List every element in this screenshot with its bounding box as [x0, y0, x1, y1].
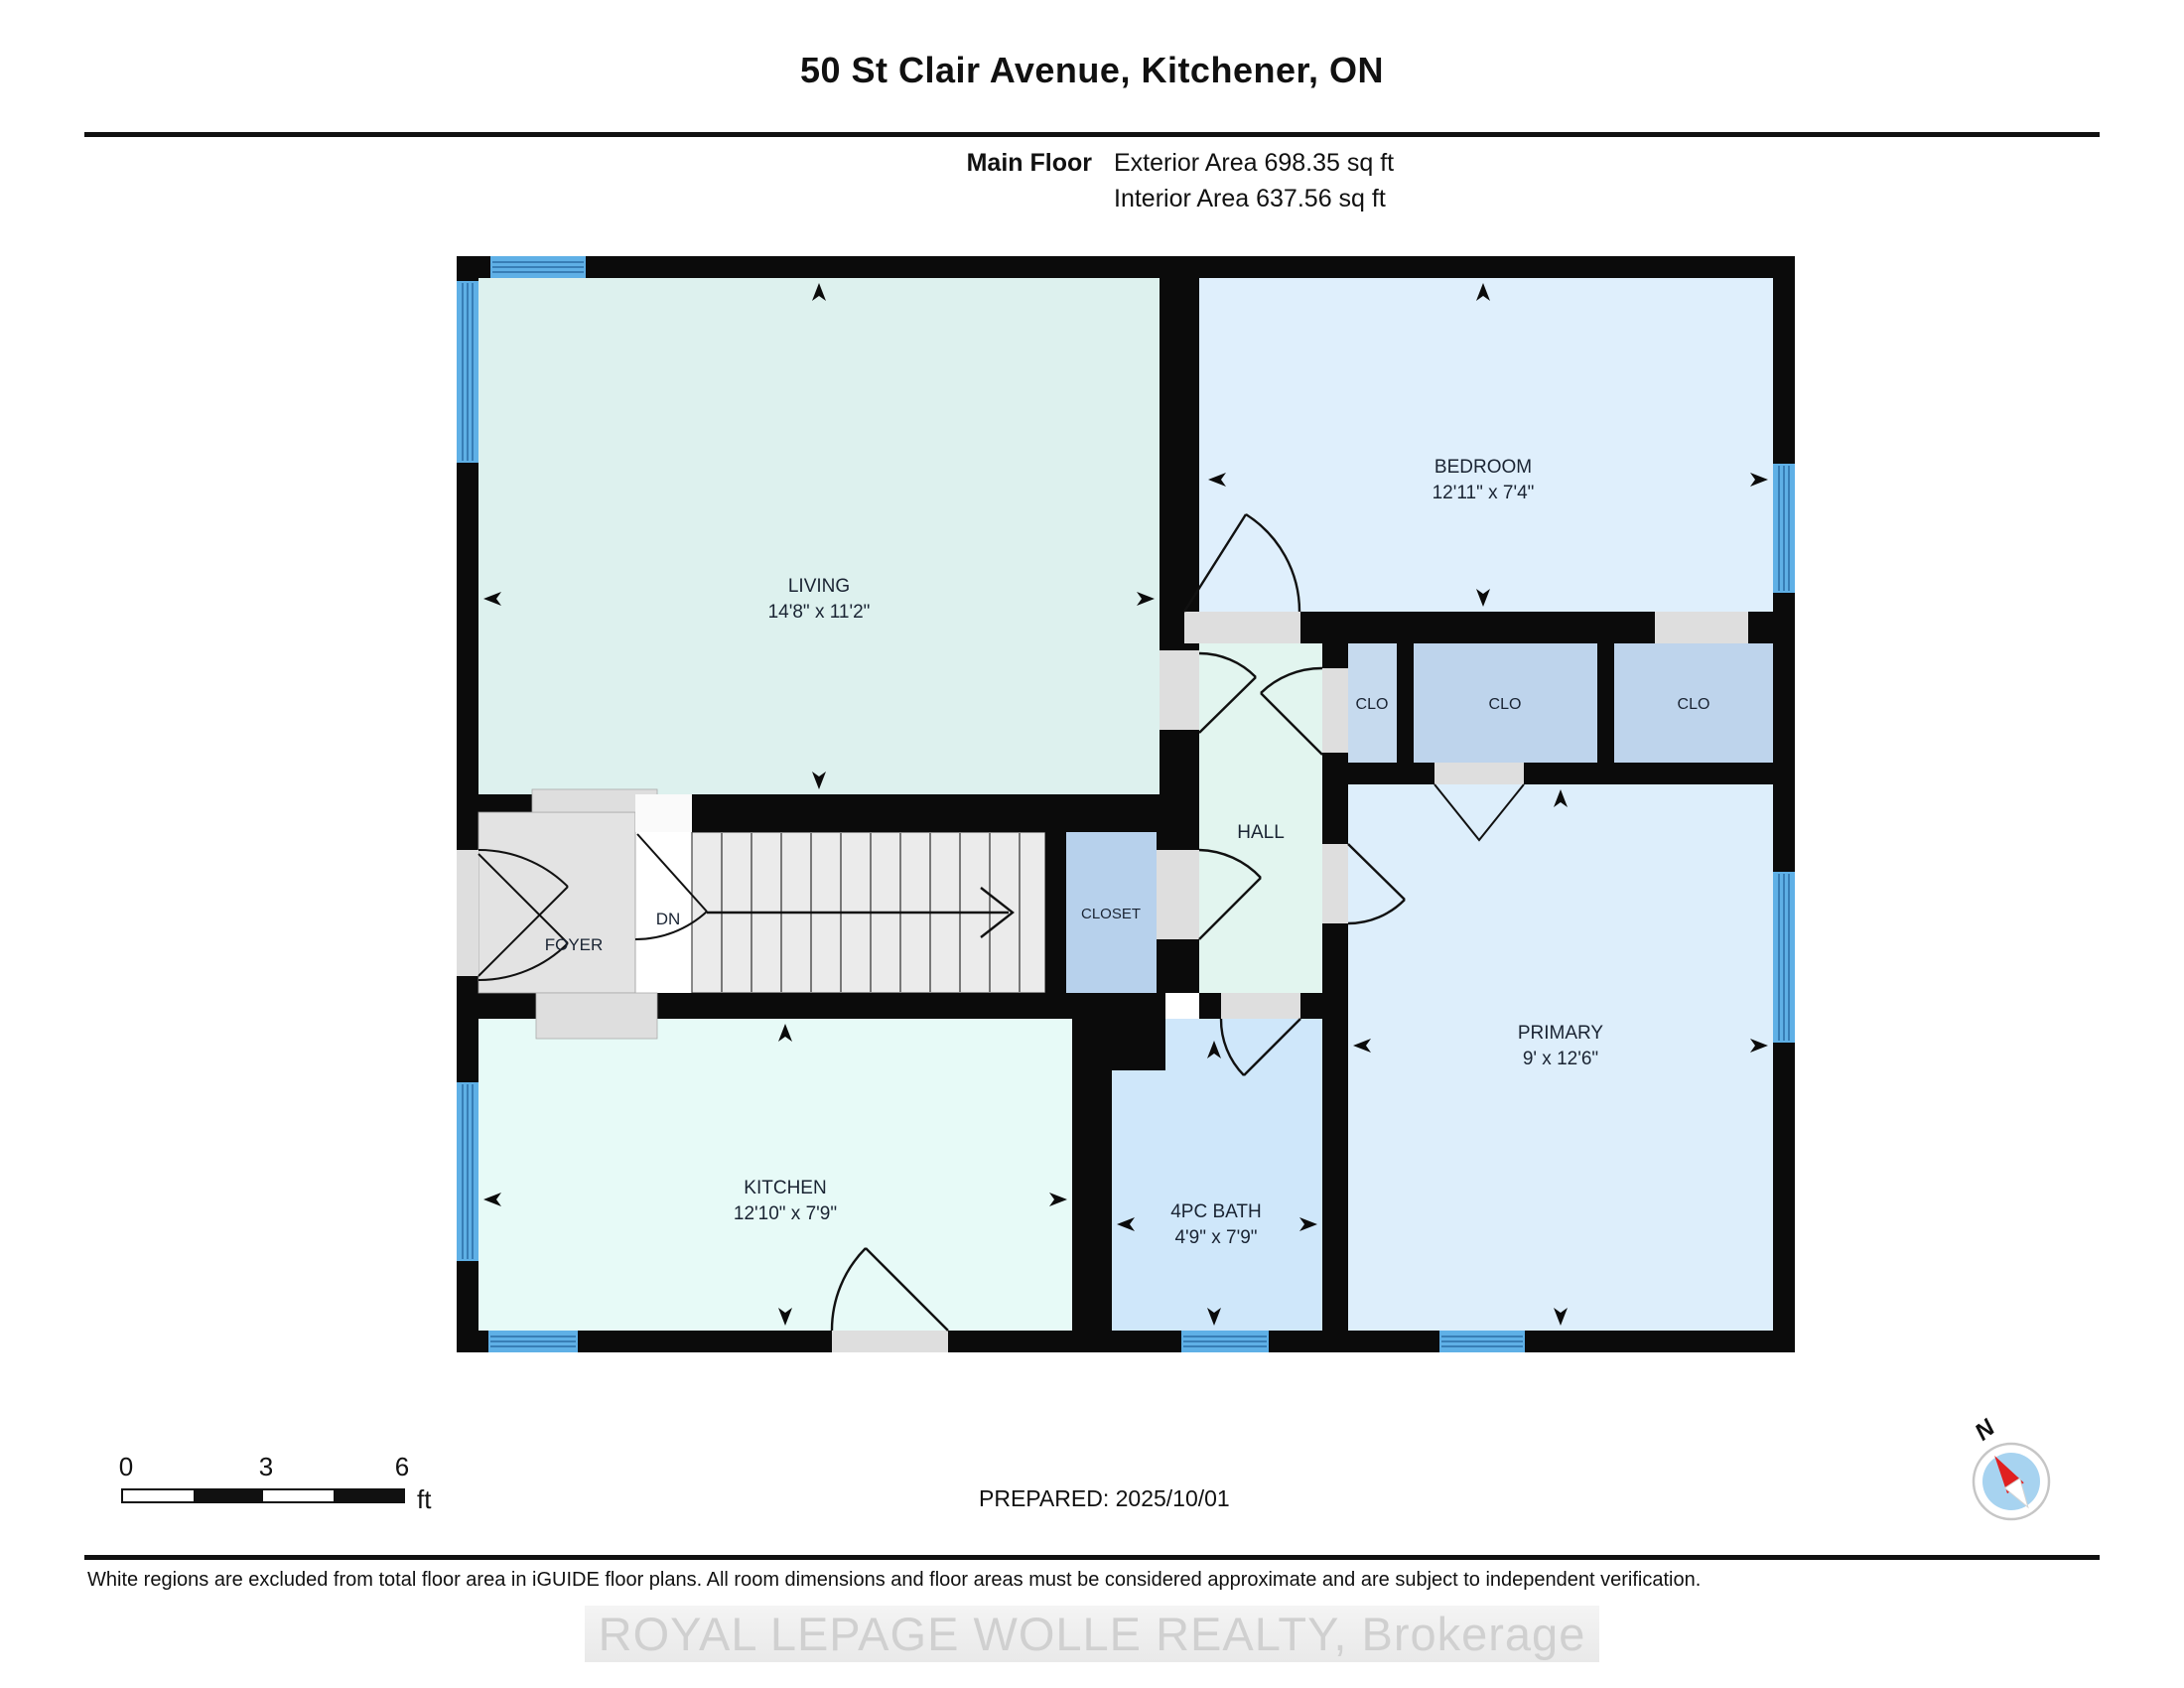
primary-door-opening: [1322, 844, 1348, 923]
foyer-area: [478, 812, 635, 993]
wall-segment: [1072, 993, 1112, 1331]
scale-segment: [334, 1490, 404, 1501]
window: [1181, 1331, 1269, 1352]
living-hall-opening: [1160, 650, 1199, 730]
bedroom-closet-opening: [1655, 612, 1748, 643]
interior-area-text: Interior Area 637.56 sq ft: [1114, 185, 1386, 213]
kitchen-dims: 12'10" x 7'9": [734, 1203, 837, 1224]
wall-segment: [457, 256, 1795, 278]
scale-six: 6: [382, 1452, 422, 1482]
floor-name: Main Floor: [695, 149, 1092, 178]
primary-label: PRIMARY: [1518, 1023, 1604, 1044]
wall-segment: [1322, 763, 1795, 784]
bedroom-door-opening: [1184, 612, 1300, 643]
clo2-label: CLO: [1489, 696, 1522, 713]
scale-segment: [123, 1490, 194, 1501]
window: [1773, 872, 1795, 1043]
scale-three: 3: [246, 1452, 286, 1482]
compass: N: [1944, 1410, 2073, 1539]
hall-label: HALL: [1237, 822, 1285, 843]
kitchen-label: KITCHEN: [744, 1178, 826, 1198]
window: [488, 1331, 578, 1352]
wall-segment: [1773, 256, 1795, 1352]
scale-bar: [121, 1488, 405, 1503]
scale-segment: [263, 1490, 334, 1501]
wall-segment: [1597, 643, 1614, 763]
hall-area: [1199, 643, 1322, 993]
bath-door-opening: [1221, 993, 1300, 1019]
stair-doorway: [635, 794, 692, 832]
exterior-area-text: Exterior Area 698.35 sq ft: [1114, 149, 1394, 178]
brokerage-watermark: ROYAL LEPAGE WOLLE REALTY, Brokerage: [0, 1607, 2184, 1661]
living-dims: 14'8" x 11'2": [768, 602, 871, 623]
window: [1773, 464, 1795, 593]
wall-segment: [1160, 256, 1199, 832]
wall-segment: [1397, 643, 1414, 763]
closet-door-opening: [1157, 850, 1199, 939]
prepared-date: PREPARED: 2025/10/01: [979, 1485, 1230, 1512]
foyer-label: FOYER: [545, 935, 604, 954]
compass-north-label: N: [1970, 1414, 2000, 1446]
living-room-area: [478, 278, 1160, 794]
stairs-dn-label: DN: [656, 910, 681, 928]
window: [457, 281, 478, 463]
scale-zero: 0: [106, 1452, 146, 1482]
front-door-opening: [457, 850, 478, 976]
hall-closet1-opening: [1322, 668, 1348, 753]
floor-plan-page: 50 St Clair Avenue, Kitchener, ON Main F…: [0, 0, 2184, 1688]
bedroom-label: BEDROOM: [1434, 457, 1532, 478]
wall-segment: [1045, 832, 1066, 993]
kitchen-area: [478, 1019, 1072, 1331]
window: [1439, 1331, 1525, 1352]
wall-segment: [457, 1331, 1795, 1352]
bath-dims: 4'9" x 7'9": [1174, 1227, 1257, 1248]
foyer-bottom-step: [536, 993, 657, 1039]
bath-label: 4PC BATH: [1170, 1201, 1262, 1222]
floor-plan-drawing: LIVING 14'8" x 11'2" BEDROOM 12'11" x 7'…: [457, 256, 1795, 1352]
closet-label: CLOSET: [1081, 906, 1141, 922]
clo1-label: CLO: [1356, 696, 1389, 713]
living-label: LIVING: [788, 576, 850, 597]
scale-segment: [194, 1490, 264, 1501]
bedroom-dims: 12'11" x 7'4": [1433, 483, 1535, 503]
kitchen-door-opening: [832, 1331, 948, 1352]
wall-segment: [1112, 993, 1165, 1070]
disclaimer-text: White regions are excluded from total fl…: [87, 1569, 1701, 1592]
primary-closet-opening: [1434, 763, 1524, 784]
window: [490, 256, 586, 278]
bedroom-area: [1199, 278, 1773, 612]
brokerage-watermark-text: ROYAL LEPAGE WOLLE REALTY, Brokerage: [585, 1606, 1600, 1662]
primary-dims: 9' x 12'6": [1523, 1049, 1598, 1069]
header-divider: [84, 132, 2100, 137]
clo3-label: CLO: [1678, 696, 1710, 713]
page-title: 50 St Clair Avenue, Kitchener, ON: [0, 50, 2184, 91]
window: [457, 1082, 478, 1261]
footer-divider: [84, 1555, 2100, 1560]
scale-unit: ft: [417, 1484, 431, 1515]
